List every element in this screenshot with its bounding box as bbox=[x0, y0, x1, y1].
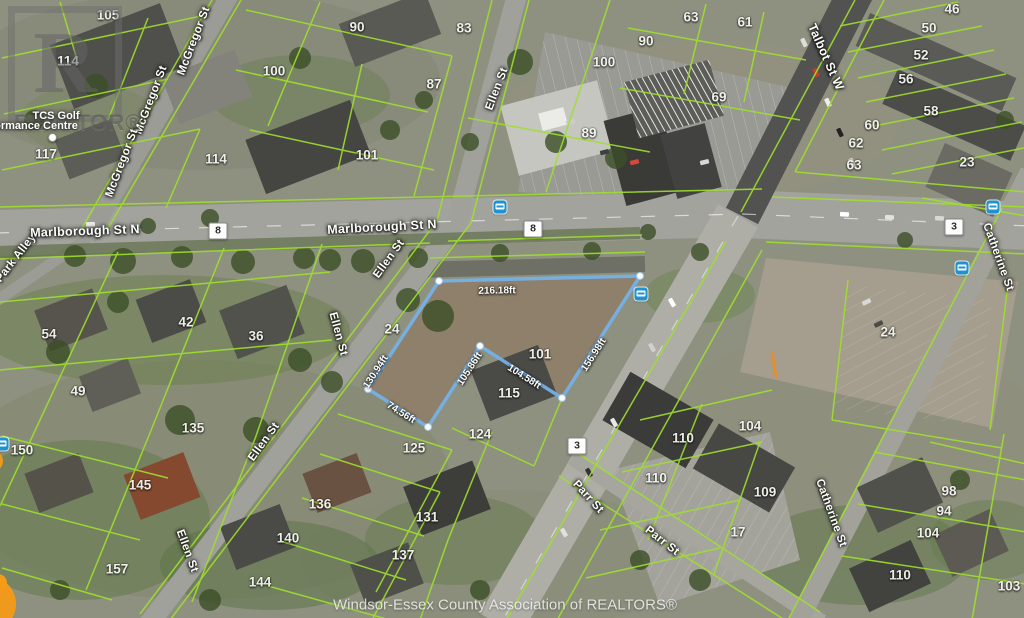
property-vertex[interactable] bbox=[477, 343, 484, 350]
realtor-logo-letter: R bbox=[33, 20, 97, 108]
realtor-logo-watermark: R bbox=[8, 6, 122, 122]
map-attribution: Windsor-Essex County Association of REAL… bbox=[333, 597, 677, 614]
property-vertex[interactable] bbox=[637, 273, 644, 280]
poi-label-line2: ormance Centre bbox=[0, 120, 78, 132]
property-vertex[interactable] bbox=[559, 395, 566, 402]
satellite-map-viewport[interactable]: McGregor StMcGregor StMcGregor StPark Al… bbox=[0, 0, 1024, 618]
property-vertex[interactable] bbox=[365, 386, 372, 393]
map-imagery-layer bbox=[0, 0, 1024, 618]
poi-marker-dot[interactable] bbox=[48, 133, 57, 142]
property-vertex[interactable] bbox=[436, 278, 443, 285]
property-vertex[interactable] bbox=[425, 424, 432, 431]
